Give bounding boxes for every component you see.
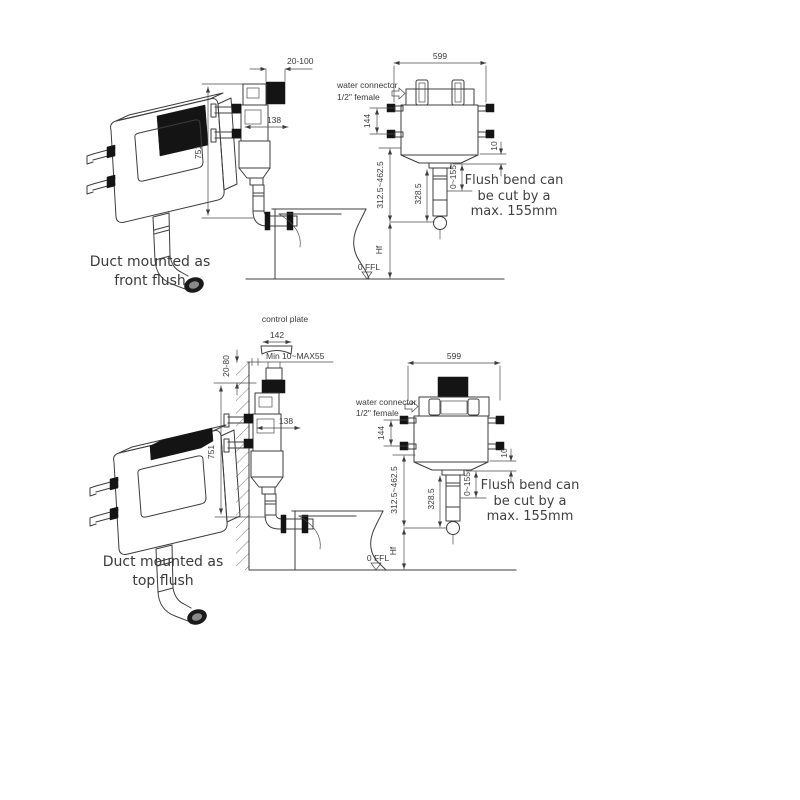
front-flush-figure: Duct mounted as front flush 751 20-100 1… bbox=[87, 51, 563, 295]
water-connector-label-line1: water connector bbox=[336, 80, 398, 90]
water-connector-label-line2: 1/2" female bbox=[337, 92, 380, 102]
dim-inlet-144: 144 bbox=[376, 426, 386, 440]
control-plate-label: control plate bbox=[262, 314, 309, 324]
flush-bend-note-line3: max. 155mm bbox=[487, 509, 574, 524]
dim-depth-138: 138 bbox=[267, 115, 281, 125]
mounting-brackets bbox=[87, 145, 115, 194]
dim-wall-range: Min 10~MAX55 bbox=[266, 351, 325, 361]
dim-front-offset-20-100: 20-100 bbox=[287, 56, 314, 66]
front-flush-caption-line1: Duct mounted as bbox=[90, 254, 211, 270]
top-flush-plate-box bbox=[150, 428, 213, 460]
dim-hf: Hf bbox=[374, 245, 384, 254]
technical-drawing-page: Duct mounted as front flush 751 20-100 1… bbox=[0, 0, 800, 800]
technical-drawing-canvas: Duct mounted as front flush 751 20-100 1… bbox=[0, 0, 800, 800]
flush-bend-note-line1: Flush bend can bbox=[465, 173, 564, 188]
side-brackets bbox=[211, 104, 241, 142]
front-flush-front-view: 599 water connector 1/2" female 144 bbox=[336, 51, 506, 278]
dim-bend-328: 328.5 bbox=[413, 183, 423, 205]
dim-width-599: 599 bbox=[433, 51, 447, 61]
dim-cut-range: 0~155 bbox=[462, 472, 472, 496]
front-flush-side-view: 751 20-100 138 bbox=[193, 56, 314, 230]
control-plate-front-block bbox=[438, 377, 468, 397]
floor-level-label: 0 FFL bbox=[367, 553, 389, 563]
top-flush-isometric-view bbox=[90, 425, 240, 627]
top-flush-front-view: 599 water connector 1/2" female 144 bbox=[355, 351, 516, 569]
dim-inlet-144: 144 bbox=[362, 114, 372, 128]
dim-hf: Hf bbox=[388, 546, 398, 555]
water-connector-label-line1: water connector bbox=[355, 397, 417, 407]
top-flush-caption-line2: top flush bbox=[132, 573, 193, 589]
flush-bend-note-line3: max. 155mm bbox=[471, 204, 558, 219]
flush-bend-note-line2: be cut by a bbox=[493, 494, 566, 509]
front-plate-side-profile bbox=[266, 82, 285, 104]
toilet-pan-side-view bbox=[272, 209, 369, 279]
top-plate-side-profile bbox=[262, 380, 285, 393]
flush-bend-note-line2: be cut by a bbox=[477, 189, 550, 204]
dim-flush-pipe-range: 312.5~462.5 bbox=[389, 466, 399, 514]
dim-height-751: 751 bbox=[193, 145, 203, 159]
wall-hatching bbox=[236, 362, 249, 570]
control-plate-detail: control plate 142 bbox=[261, 314, 308, 354]
top-flush-figure: Duct mounted as top flush control plate … bbox=[90, 314, 579, 627]
dim-depth-range-20-80: 20-80 bbox=[221, 355, 231, 377]
flush-bend-outlet bbox=[447, 522, 460, 535]
dim-gap-10: 10 bbox=[489, 141, 499, 151]
dim-gap-10: 10 bbox=[499, 448, 509, 458]
dim-depth-138: 138 bbox=[279, 416, 293, 426]
dim-height-751: 751 bbox=[206, 445, 216, 459]
flush-bend-note-line1: Flush bend can bbox=[481, 478, 580, 493]
dim-cut-range: 0~155 bbox=[448, 165, 458, 189]
dim-flush-pipe-range: 312.5~462.5 bbox=[375, 161, 385, 209]
dim-bend-328: 328.5 bbox=[426, 488, 436, 510]
floor-level-label: 0 FFL bbox=[358, 262, 380, 272]
mounting-brackets bbox=[90, 477, 118, 526]
water-connector-label-line2: 1/2" female bbox=[356, 408, 399, 418]
top-flush-caption-line1: Duct mounted as bbox=[103, 554, 224, 570]
dim-plate-142: 142 bbox=[270, 330, 284, 340]
dim-width-599: 599 bbox=[447, 351, 461, 361]
flush-bend-outlet bbox=[434, 217, 447, 230]
front-flush-caption-line2: front flush bbox=[114, 273, 186, 289]
